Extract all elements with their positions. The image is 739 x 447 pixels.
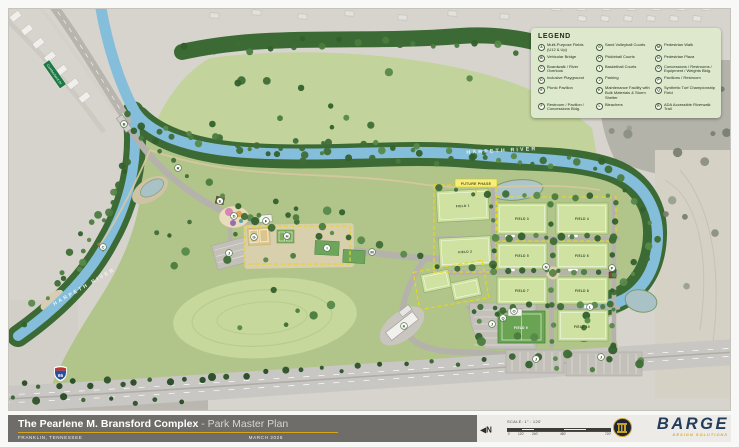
tree-icon (612, 218, 618, 224)
tree-icon (346, 235, 352, 241)
tree-icon (285, 212, 291, 218)
scale-tick: 240' (532, 432, 538, 436)
tree-icon (400, 251, 407, 258)
legend-letter: G (596, 44, 603, 51)
emblem-pillars (618, 425, 626, 430)
brand-tagline: DESIGN SOLUTIONS (635, 433, 728, 437)
marker-bleachers: L (587, 304, 594, 311)
svg-text:H: H (286, 233, 289, 238)
house-roof (601, 16, 609, 22)
tree-icon (378, 147, 386, 155)
tree-icon (124, 111, 131, 118)
legend-label: Synthetic Turf Championship Field (664, 86, 717, 95)
tree-icon (544, 236, 548, 240)
tree-icon (223, 374, 229, 380)
field-label: FIELD 1 (456, 204, 470, 209)
tree-icon (54, 280, 61, 287)
tree-icon (495, 312, 500, 317)
tree-icon (645, 256, 650, 261)
marker-maintenance: K (401, 323, 408, 330)
legend-label: Boardwalk / River Overlook (547, 65, 593, 74)
tree-icon (609, 236, 617, 244)
tree-icon (320, 151, 324, 155)
field-label: FIELD 6 (575, 254, 589, 258)
tree-icon (246, 48, 253, 55)
tree-icon (506, 235, 513, 242)
tree-icon (87, 238, 91, 242)
tree-icon (157, 129, 163, 135)
tree-icon (179, 400, 184, 405)
tree-icon (489, 204, 493, 208)
tree-icon (152, 138, 158, 144)
tree-icon (608, 345, 617, 354)
legend-item: IBasketball Courts (596, 65, 652, 74)
tree-icon (104, 376, 111, 383)
tree-icon (340, 369, 344, 373)
marker-trail: R (175, 165, 182, 172)
tree-icon (573, 158, 581, 166)
tree-icon (590, 367, 595, 372)
tree-icon (237, 325, 242, 330)
scale-tick: 120' (518, 432, 524, 436)
tree-icon (323, 206, 332, 215)
title-block-right: ◀N SCALE: 1" : 120' 0' 120' 240' 480' 72… (477, 415, 731, 442)
tree-icon (585, 318, 591, 324)
tree-icon (645, 242, 653, 250)
svg-text:FUTURE PHASE: FUTURE PHASE (461, 182, 492, 186)
tree-icon (300, 36, 305, 41)
svg-text:O: O (512, 308, 515, 313)
tree-icon (469, 264, 476, 271)
tree-icon (454, 188, 458, 192)
marker-concessions: O (511, 308, 518, 315)
tree-icon (623, 188, 627, 192)
tree-icon (494, 41, 501, 48)
legend-label: Picnic Pavilion (547, 86, 573, 91)
tree-icon (124, 158, 131, 165)
field-label: FIELD 3 (515, 217, 529, 221)
tree-icon (551, 322, 556, 327)
tree-icon (640, 207, 646, 213)
tree-icon (354, 39, 361, 46)
tree-icon (596, 270, 601, 275)
brand-wordmark: BARGE (635, 415, 729, 434)
scale-segment (535, 428, 563, 431)
legend-letter: R (655, 103, 662, 110)
tree-icon (321, 141, 325, 145)
tree-icon (200, 377, 206, 383)
tree-icon (594, 235, 600, 241)
tree-icon (617, 174, 625, 182)
tree-icon (631, 259, 637, 265)
tree-icon (554, 366, 559, 371)
svg-text:Q: Q (501, 315, 504, 320)
svg-text:G: G (252, 234, 255, 239)
tree-icon (505, 268, 511, 274)
tree-icon (32, 397, 40, 405)
tree-icon (606, 194, 610, 198)
tree-icon (610, 252, 616, 258)
tree-icon (493, 306, 498, 311)
svg-text:N: N (545, 264, 548, 269)
legend-letter: F (538, 103, 545, 110)
tree-icon (234, 80, 241, 87)
tree-icon (187, 220, 192, 225)
field-label: FIELD 2 (458, 250, 472, 255)
tree-icon (263, 257, 268, 262)
tree-icon (77, 267, 82, 272)
tree-icon (367, 122, 374, 129)
tree-icon (120, 382, 125, 387)
legend-letter: A (538, 44, 545, 51)
tree-icon (434, 161, 440, 167)
tree-icon (102, 218, 106, 222)
legend-item: JParking (596, 76, 652, 84)
field-label: FIELD 4 (575, 217, 589, 221)
tree-icon (663, 211, 669, 217)
tree-icon (606, 356, 612, 362)
tree-icon (263, 77, 271, 85)
house-roof (210, 13, 219, 18)
tree-icon (274, 151, 280, 157)
marker-volleyball: G (251, 234, 258, 241)
legend-letter: M (655, 44, 662, 51)
tree-icon (456, 363, 460, 367)
svg-text:B: B (123, 121, 126, 126)
legend-letter: H (596, 55, 603, 62)
tree-icon (654, 236, 661, 243)
tree-icon (492, 248, 497, 253)
legend-title: LEGEND (538, 33, 715, 40)
marker-playground: D (231, 213, 238, 220)
barge-emblem-icon (613, 418, 632, 437)
svg-text:J: J (491, 321, 493, 326)
tree-icon (549, 269, 557, 277)
tree-icon (251, 217, 259, 225)
tree-icon (181, 247, 190, 256)
tree-icon (530, 333, 538, 341)
legend-label: Concessions / Restrooms / Equipment / We… (664, 65, 717, 74)
tree-icon (257, 213, 262, 218)
tree-icon (11, 395, 15, 399)
svg-text:J: J (228, 250, 230, 255)
tree-icon (466, 75, 472, 81)
tree-icon (511, 153, 517, 159)
legend-item: KMaintenance Facility with Bulk Material… (596, 86, 652, 100)
field-label: FIELD 8 (575, 289, 589, 293)
tree-icon (89, 219, 95, 225)
north-arrow: ◀N (480, 421, 492, 439)
house-roof (398, 15, 407, 20)
tree-icon (360, 141, 367, 148)
tree-icon (552, 193, 559, 200)
legend-item: MPedestrian Walk (655, 43, 717, 52)
tree-icon (490, 268, 497, 275)
tree-icon (557, 303, 564, 310)
tree-icon (435, 264, 440, 269)
tree-icon (410, 41, 415, 46)
marker-bridge: B (121, 121, 128, 128)
emblem-roof (617, 423, 627, 424)
tree-icon (299, 367, 304, 372)
house-roof (647, 16, 655, 22)
tree-icon (558, 233, 566, 241)
tree-icon (330, 231, 334, 235)
date-label: MARCH 2025 (249, 435, 283, 440)
tree-icon (550, 339, 555, 344)
tree-icon (607, 301, 614, 308)
tree-icon (600, 304, 605, 309)
tree-icon (531, 268, 536, 273)
legend-item: GSand Volleyball Courts (596, 43, 652, 52)
tree-icon (243, 373, 250, 380)
tree-icon (345, 154, 352, 161)
tree-icon (610, 288, 614, 292)
tree-icon (110, 189, 117, 196)
tree-icon (454, 266, 460, 272)
svg-text:K: K (403, 323, 406, 328)
tree-icon (36, 385, 40, 389)
legend-item: RADA Accessible Riverwalk Trail (655, 103, 717, 112)
tree-icon (195, 45, 200, 50)
legend-letter: O (655, 65, 662, 72)
tree-icon (668, 196, 676, 204)
legend-letter: E (538, 87, 545, 94)
legend-item: QSynthetic Turf Championship Field (655, 86, 717, 100)
tree-icon (60, 393, 67, 400)
legend-label: Restroom / Pavilion / Concessions Bldg. (547, 103, 593, 112)
tree-icon (273, 199, 279, 205)
tree-icon (268, 46, 274, 52)
marker-parking: J (226, 250, 233, 257)
legend-item: OConcessions / Restrooms / Equipment / W… (655, 65, 717, 74)
legend-item: BVehicular Bridge (538, 55, 593, 63)
tree-icon (28, 300, 35, 307)
title-block-left: The Pearlene M. Bransford Complex - Park… (8, 415, 477, 442)
tree-icon (620, 278, 628, 286)
tree-icon (581, 269, 587, 275)
tree-icon (533, 192, 540, 199)
svg-text:65: 65 (58, 373, 64, 379)
tree-icon (682, 214, 688, 220)
tree-icon (492, 234, 498, 240)
tree-icon (556, 269, 560, 273)
tree-icon (78, 231, 83, 236)
tree-icon (484, 191, 491, 198)
tree-icon (169, 134, 175, 140)
tree-icon (547, 201, 553, 207)
scale-label: SCALE: 1" : 120' (507, 419, 542, 424)
tree-icon (431, 44, 436, 49)
tree-icon (471, 40, 478, 47)
tree-icon (577, 301, 584, 308)
tree-icon (81, 398, 85, 402)
north-label: N (486, 425, 492, 434)
tree-icon (483, 155, 488, 160)
legend-item: PPavilions / Restroom (655, 76, 717, 84)
tree-icon (454, 43, 459, 48)
svg-text:I: I (326, 245, 327, 250)
legend-label: Pickleball Courts (605, 55, 635, 60)
tree-icon (522, 193, 527, 198)
house-roof (252, 10, 261, 15)
legend-letter: K (596, 87, 603, 94)
tree-icon (263, 369, 268, 374)
legend-letter: Q (655, 87, 662, 94)
tree-icon (105, 209, 113, 217)
field-label: FIELD 5 (515, 254, 529, 258)
tree-icon (572, 195, 579, 202)
legend-item: LBleachers (596, 103, 652, 112)
tree-icon (373, 140, 378, 145)
legend-item: AMulti-Purpose Fields (U12 & Up) (538, 43, 593, 52)
marker-walk: M (369, 249, 376, 256)
tree-icon (271, 287, 277, 293)
tree-icon (513, 50, 519, 56)
tree-icon (561, 167, 566, 172)
tree-icon (66, 249, 73, 256)
tree-icon (385, 68, 393, 76)
scale-tick: 720' (605, 432, 611, 436)
legend-label: Maintenance Facility with Bulk Materials… (605, 86, 652, 100)
tree-icon (309, 311, 317, 319)
tree-icon (540, 157, 547, 164)
svg-text:C: C (102, 244, 105, 249)
house-roof (345, 11, 354, 16)
scale-segment (507, 428, 521, 431)
tree-icon (683, 283, 690, 290)
tree-icon (496, 158, 501, 163)
tree-icon (413, 143, 420, 150)
tree-icon (548, 221, 553, 226)
marker-restroom: F (263, 218, 270, 225)
tree-icon (472, 309, 477, 314)
house-roof (578, 16, 586, 22)
tree-icon (509, 353, 516, 360)
legend-item: DInclusive Playground (538, 76, 593, 84)
tree-icon (22, 322, 27, 327)
tree-icon (284, 322, 289, 327)
tree-icon (623, 129, 632, 138)
tree-icon (587, 192, 594, 199)
legend-item: EPicnic Pavilion (538, 86, 593, 100)
tree-icon (519, 267, 525, 273)
tree-icon (139, 135, 144, 140)
tree-icon (131, 128, 138, 135)
tree-icon (502, 190, 509, 197)
tree-icon (549, 302, 555, 308)
tree-icon (417, 253, 423, 259)
tree-icon (518, 160, 522, 164)
marker-pavilions: P (609, 265, 616, 272)
svg-text:P: P (611, 265, 614, 270)
tree-icon (525, 361, 533, 369)
title-block: The Pearlene M. Bransford Complex - Park… (8, 415, 731, 442)
tree-icon (396, 40, 404, 48)
tree-icon (369, 155, 375, 161)
tree-icon (550, 253, 556, 259)
tree-icon (491, 218, 495, 222)
tree-icon (233, 232, 238, 237)
tree-icon (299, 145, 305, 151)
tree-icon (605, 166, 613, 174)
legend-letter: I (596, 65, 603, 72)
tree-icon (328, 103, 333, 108)
tree-icon (635, 360, 644, 369)
tree-icon (631, 272, 635, 276)
legend-label: Pedestrian Plaza (664, 55, 694, 60)
legend-label: Pedestrian Walk (664, 43, 693, 48)
tree-icon (343, 115, 349, 121)
legend-label: Multi-Purpose Fields (U12 & Up) (547, 43, 593, 52)
tree-icon (584, 233, 590, 239)
tree-icon (324, 148, 332, 156)
tree-icon (598, 157, 605, 164)
tree-icon (499, 307, 506, 314)
tree-icon (209, 121, 216, 128)
legend-grid: AMulti-Purpose Fields (U12 & Up) BVehicu… (538, 43, 715, 112)
legend-label: Inclusive Playground (547, 76, 584, 81)
legend-item: CBoardwalk / River Overlook (538, 65, 593, 74)
tree-icon (514, 332, 522, 340)
marker-pickleball: H (284, 233, 291, 240)
tree-icon (482, 357, 487, 362)
tree-icon (157, 149, 162, 154)
title-separator: - (198, 418, 207, 430)
tree-icon (171, 158, 176, 163)
house-roof (500, 14, 509, 19)
tree-icon (330, 125, 335, 130)
tree-icon (236, 42, 241, 47)
legend-item: NPedestrian Plaza (655, 55, 717, 63)
tree-icon (115, 181, 123, 189)
marker-pavilion: E (217, 198, 224, 205)
house-roof (448, 11, 457, 16)
tree-icon (612, 273, 617, 278)
tree-icon (248, 147, 252, 151)
svg-text:R: R (177, 165, 180, 170)
marker-parking: J (489, 321, 496, 328)
tree-icon (212, 133, 219, 140)
tree-icon (722, 128, 731, 137)
field-label: FIELD 7 (515, 289, 529, 293)
tree-icon (569, 234, 574, 239)
tree-icon (396, 159, 401, 164)
house-roof (670, 16, 678, 22)
tree-icon (195, 140, 202, 147)
tree-icon (435, 184, 442, 191)
svg-text:J: J (535, 356, 537, 361)
field-label: FIELD 10 (574, 325, 590, 329)
tree-icon (416, 150, 423, 157)
tree-icon (111, 200, 116, 205)
tree-icon (81, 249, 86, 254)
tree-icon (208, 373, 216, 381)
tree-icon (319, 43, 326, 50)
tree-icon (152, 397, 157, 402)
legend-label: Bleachers (605, 103, 623, 108)
legend-label: ADA Accessible Riverwalk Trail (664, 103, 717, 112)
house-roof (298, 14, 307, 19)
tree-icon (70, 378, 76, 384)
tree-icon (167, 378, 174, 385)
tree-icon (593, 167, 597, 171)
tree-icon (382, 37, 389, 44)
tree-icon (376, 241, 384, 249)
emblem-base (617, 431, 627, 432)
courts-area (244, 223, 366, 269)
marker-boardwalk: C (100, 244, 107, 251)
